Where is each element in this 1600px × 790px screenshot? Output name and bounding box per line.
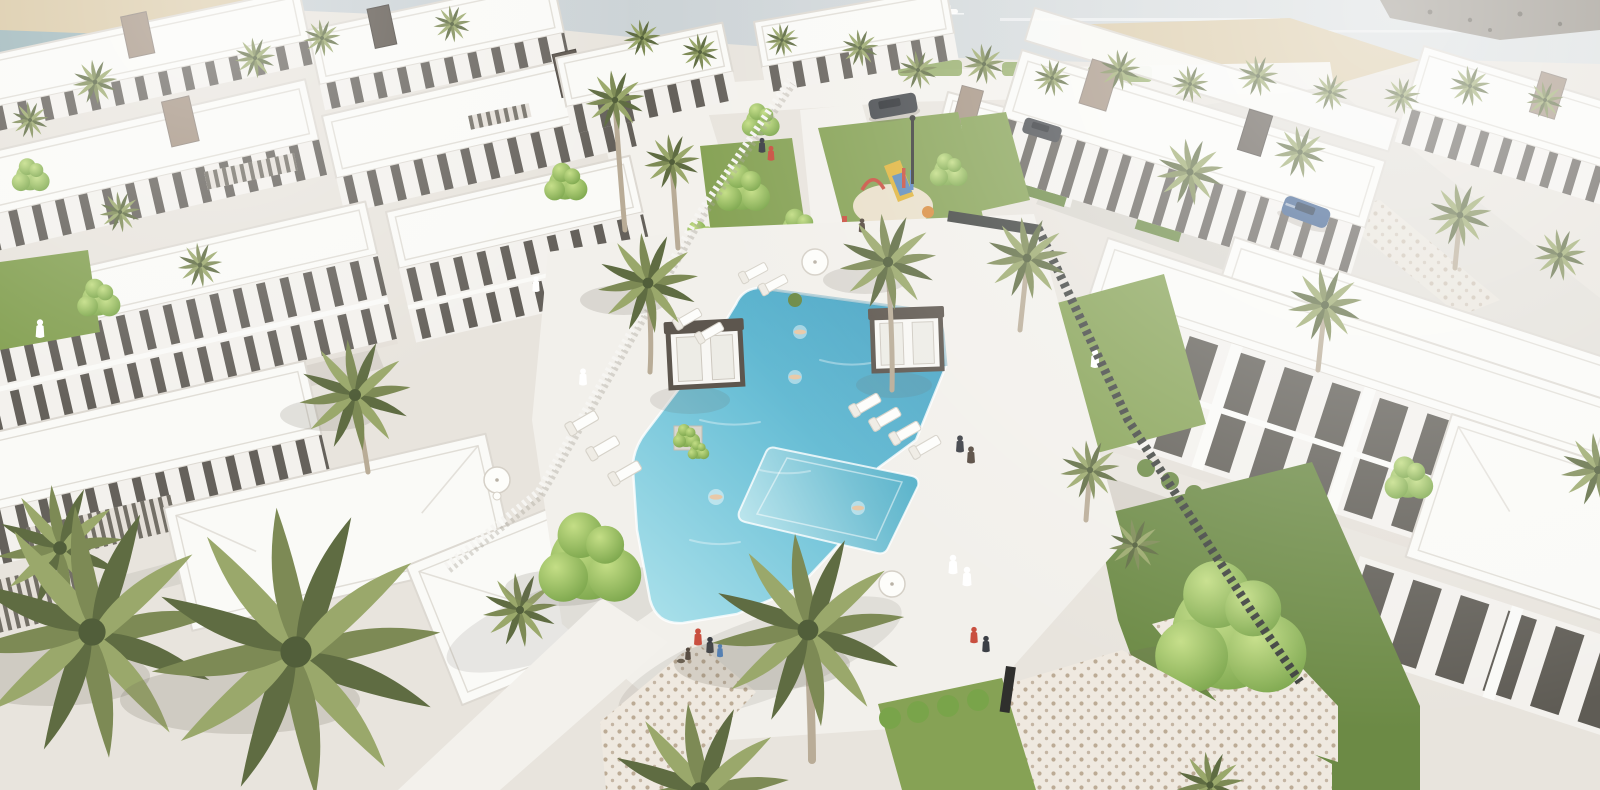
aerial-villa-community-rendering [0,0,1600,790]
rendering-canvas [0,0,1600,790]
sunlight-glare [0,0,1600,790]
haze-top-left [0,0,1600,790]
